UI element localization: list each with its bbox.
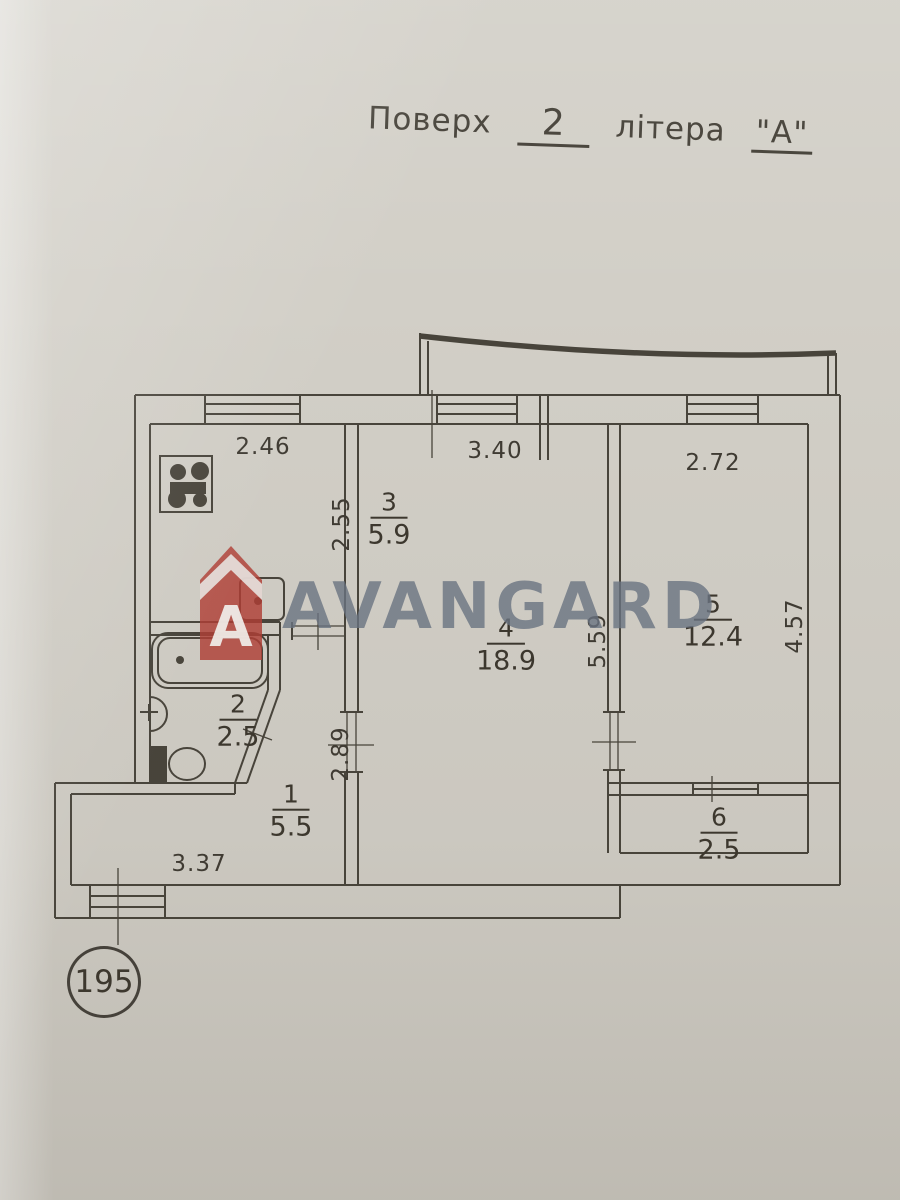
- room-label-bathroom: 2 2.5: [217, 692, 260, 753]
- floor-number: 2: [517, 101, 590, 147]
- bottom-window: [90, 868, 165, 945]
- dim-room4-width: 3.40: [467, 438, 522, 464]
- dim-room5-depth: 4.57: [782, 598, 808, 653]
- room-label-kitchen: 3 5.9: [368, 490, 411, 551]
- stove-icon: [160, 456, 212, 512]
- avangard-house-logo-icon: A: [194, 542, 266, 664]
- title-word-floor: Поверх: [368, 100, 493, 140]
- room-label-loggia: 6 2.5: [698, 805, 741, 866]
- plan-number-badge: 195: [67, 946, 141, 1018]
- svg-text:A: A: [209, 595, 253, 660]
- building-letter: "А": [751, 114, 813, 155]
- dim-kitchen-depth: 2.55: [329, 496, 355, 551]
- wall-room5-room6: [608, 776, 840, 802]
- dim-room5-width: 2.72: [685, 450, 740, 476]
- room-label-hall: 1 5.5: [270, 782, 313, 843]
- avangard-watermark: AVANGARD: [282, 570, 720, 644]
- floor-plan-photo: Поверх 2 літера "А" 3 5.9 4 18.9 5 12.4 …: [0, 0, 900, 1200]
- dim-hall-depth: 2.89: [328, 726, 354, 781]
- balcony-top: [420, 333, 836, 395]
- title-word-letter: літера: [615, 109, 726, 149]
- dim-kitchen-width: 2.46: [235, 434, 290, 460]
- toilet-icon: [151, 746, 205, 782]
- washbasin-icon: [140, 697, 167, 731]
- dim-hall-width: 3.37: [171, 851, 226, 877]
